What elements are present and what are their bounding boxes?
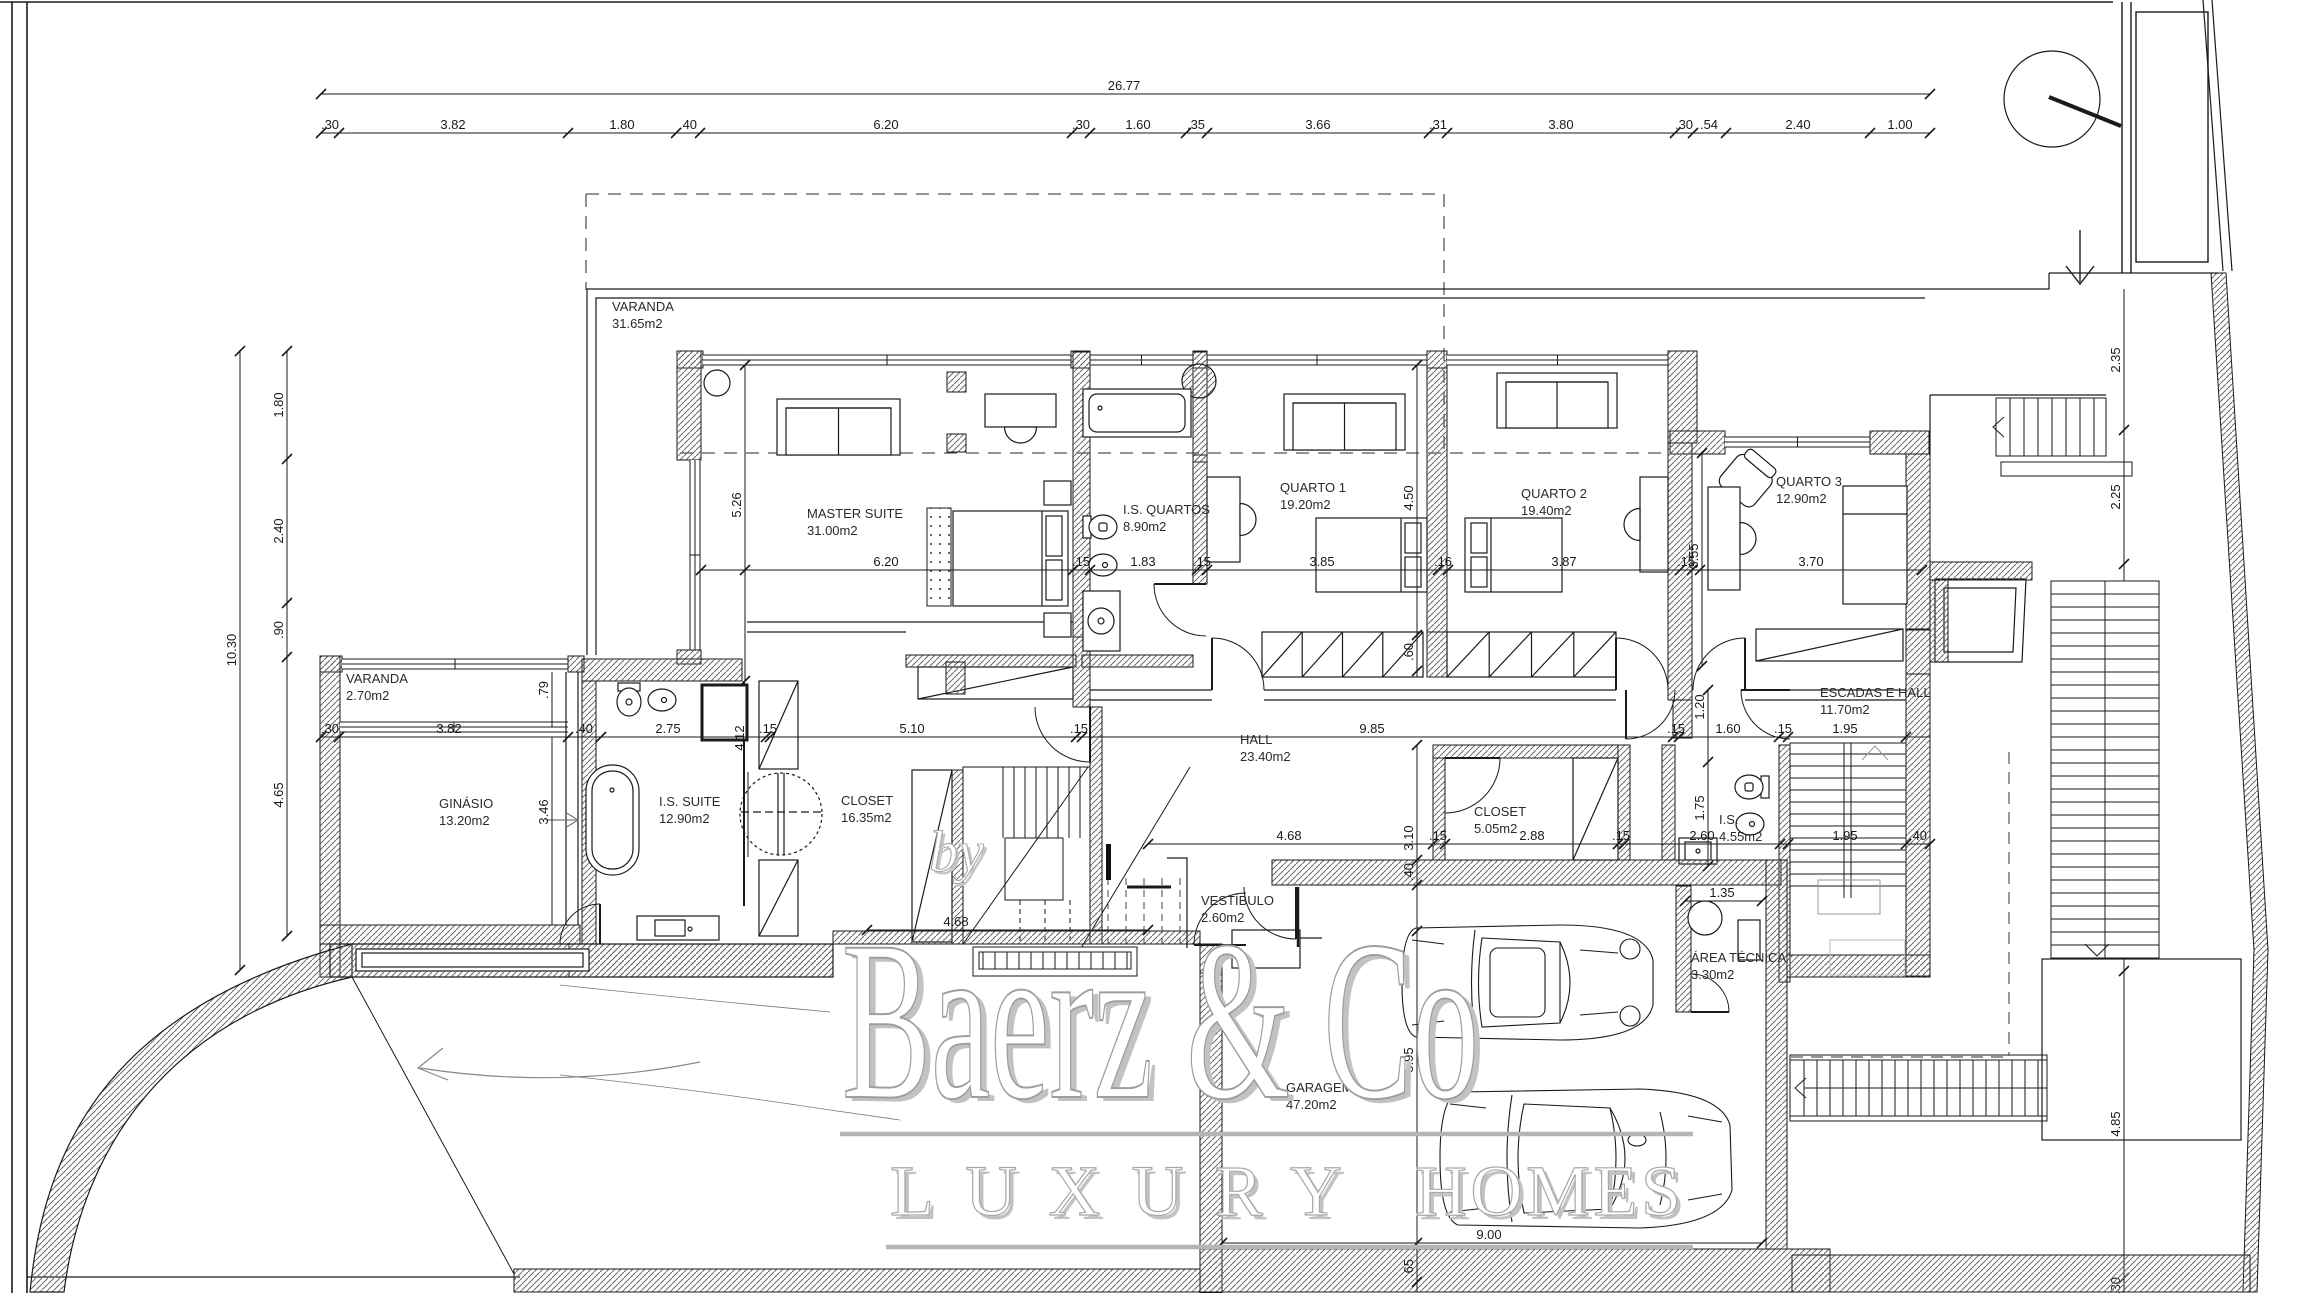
- svg-text:QUARTO 2: QUARTO 2: [1521, 486, 1587, 501]
- svg-text:2.88: 2.88: [1519, 828, 1544, 843]
- svg-text:.30: .30: [1072, 117, 1090, 132]
- svg-text:1.80: 1.80: [271, 392, 286, 417]
- svg-text:3.80: 3.80: [1548, 117, 1573, 132]
- svg-text:CLOSET: CLOSET: [1474, 804, 1526, 819]
- svg-text:3.66: 3.66: [1305, 117, 1330, 132]
- svg-text:19.40m2: 19.40m2: [1521, 503, 1572, 518]
- svg-text:1.95: 1.95: [1832, 721, 1857, 736]
- svg-text:VARANDA: VARANDA: [612, 299, 674, 314]
- svg-text:.15: .15: [1429, 828, 1447, 843]
- svg-text:VARANDA: VARANDA: [346, 671, 408, 686]
- svg-text:.15: .15: [1667, 721, 1685, 736]
- svg-text:3.82: 3.82: [440, 117, 465, 132]
- svg-text:1.60: 1.60: [1715, 721, 1740, 736]
- svg-text:.15: .15: [759, 721, 777, 736]
- svg-text:.30: .30: [321, 117, 339, 132]
- svg-text:I.S. SUITE: I.S. SUITE: [659, 794, 721, 809]
- svg-text:5.10: 5.10: [899, 721, 924, 736]
- svg-text:.16: .16: [1434, 554, 1452, 569]
- svg-text:19.20m2: 19.20m2: [1280, 497, 1331, 512]
- svg-text:2.40: 2.40: [1785, 117, 1810, 132]
- svg-text:10.30: 10.30: [224, 634, 239, 667]
- svg-text:3.70: 3.70: [1798, 554, 1823, 569]
- svg-text:2.40: 2.40: [271, 518, 286, 543]
- svg-text:.35: .35: [1187, 117, 1205, 132]
- svg-text:.79: .79: [536, 681, 551, 699]
- svg-text:12.90m2: 12.90m2: [659, 811, 710, 826]
- svg-text:QUARTO 3: QUARTO 3: [1776, 474, 1842, 489]
- svg-text:.40: .40: [679, 117, 697, 132]
- svg-text:.54: .54: [1700, 117, 1718, 132]
- svg-text:4.55m2: 4.55m2: [1719, 829, 1762, 844]
- svg-text:HOMES: HOMES: [1415, 1151, 1681, 1231]
- svg-text:.60: .60: [1401, 643, 1416, 661]
- svg-text:1.60: 1.60: [1125, 117, 1150, 132]
- svg-text:1.75: 1.75: [1692, 795, 1707, 820]
- svg-text:2.60: 2.60: [1689, 828, 1714, 843]
- svg-text:31.00m2: 31.00m2: [807, 523, 858, 538]
- svg-text:1.35: 1.35: [1709, 885, 1734, 900]
- svg-text:4.12: 4.12: [732, 725, 747, 750]
- svg-text:8.90m2: 8.90m2: [1123, 519, 1166, 534]
- svg-text:.15: .15: [1193, 554, 1211, 569]
- svg-text:12.90m2: 12.90m2: [1776, 491, 1827, 506]
- svg-text:.40: .40: [1401, 863, 1416, 881]
- svg-text:2.75: 2.75: [655, 721, 680, 736]
- svg-text:1.83: 1.83: [1130, 554, 1155, 569]
- svg-text:2.70m2: 2.70m2: [346, 688, 389, 703]
- svg-text:4.85: 4.85: [2108, 1111, 2123, 1136]
- svg-text:26.77: 26.77: [1108, 78, 1141, 93]
- svg-text:3.55: 3.55: [1686, 543, 1701, 568]
- svg-text:by: by: [929, 819, 984, 884]
- svg-text:3.30m2: 3.30m2: [1691, 967, 1734, 982]
- svg-text:4.50: 4.50: [1401, 485, 1416, 510]
- svg-text:.15: .15: [1070, 721, 1088, 736]
- svg-text:16.35m2: 16.35m2: [841, 810, 892, 825]
- svg-text:I.S.: I.S.: [1719, 812, 1739, 827]
- svg-text:1.80: 1.80: [609, 117, 634, 132]
- svg-text:3.10: 3.10: [1401, 825, 1416, 850]
- svg-text:5.26: 5.26: [729, 492, 744, 517]
- svg-text:.30: .30: [1675, 117, 1693, 132]
- svg-text:1.95: 1.95: [1832, 828, 1857, 843]
- svg-text:I.S. QUARTOS: I.S. QUARTOS: [1123, 502, 1210, 517]
- svg-text:13.20m2: 13.20m2: [439, 813, 490, 828]
- svg-text:9.85: 9.85: [1359, 721, 1384, 736]
- svg-text:2.35: 2.35: [2108, 347, 2123, 372]
- svg-text:.65: .65: [1401, 1259, 1416, 1277]
- svg-text:HALL: HALL: [1240, 732, 1273, 747]
- svg-text:ÁREA TÉCNICA: ÁREA TÉCNICA: [1691, 950, 1786, 965]
- svg-text:3.82: 3.82: [436, 721, 461, 736]
- svg-text:Baerz & Co: Baerz & Co: [842, 895, 1479, 1147]
- svg-text:CLOSET: CLOSET: [841, 793, 893, 808]
- svg-text:11.70m2: 11.70m2: [1820, 702, 1870, 717]
- svg-text:.31: .31: [1429, 117, 1447, 132]
- svg-text:5.05m2: 5.05m2: [1474, 821, 1517, 836]
- svg-text:ESCADAS E HALL: ESCADAS E HALL: [1820, 685, 1931, 700]
- svg-text:.15: .15: [1612, 828, 1630, 843]
- svg-text:.40: .40: [1909, 828, 1927, 843]
- svg-text:.40: .40: [575, 721, 593, 736]
- svg-text:.30: .30: [321, 721, 339, 736]
- svg-text:3.46: 3.46: [536, 799, 551, 824]
- svg-text:1.00: 1.00: [1887, 117, 1912, 132]
- svg-text:6.20: 6.20: [873, 117, 898, 132]
- svg-text:2.25: 2.25: [2108, 484, 2123, 509]
- svg-text:1.20: 1.20: [1692, 694, 1707, 719]
- svg-text:3.87: 3.87: [1551, 554, 1576, 569]
- svg-text:GINÁSIO: GINÁSIO: [439, 796, 493, 811]
- svg-text:3.85: 3.85: [1309, 554, 1334, 569]
- svg-text:.15: .15: [1774, 721, 1792, 736]
- svg-text:23.40m2: 23.40m2: [1240, 749, 1291, 764]
- svg-text:.15: .15: [1072, 554, 1090, 569]
- svg-text:4.65: 4.65: [271, 782, 286, 807]
- svg-text:31.65m2: 31.65m2: [612, 316, 663, 331]
- svg-text:MASTER SUITE: MASTER SUITE: [807, 506, 903, 521]
- svg-text:6.20: 6.20: [873, 554, 898, 569]
- svg-text:.90: .90: [271, 621, 286, 639]
- svg-text:4.68: 4.68: [1276, 828, 1301, 843]
- svg-text:QUARTO 1: QUARTO 1: [1280, 480, 1346, 495]
